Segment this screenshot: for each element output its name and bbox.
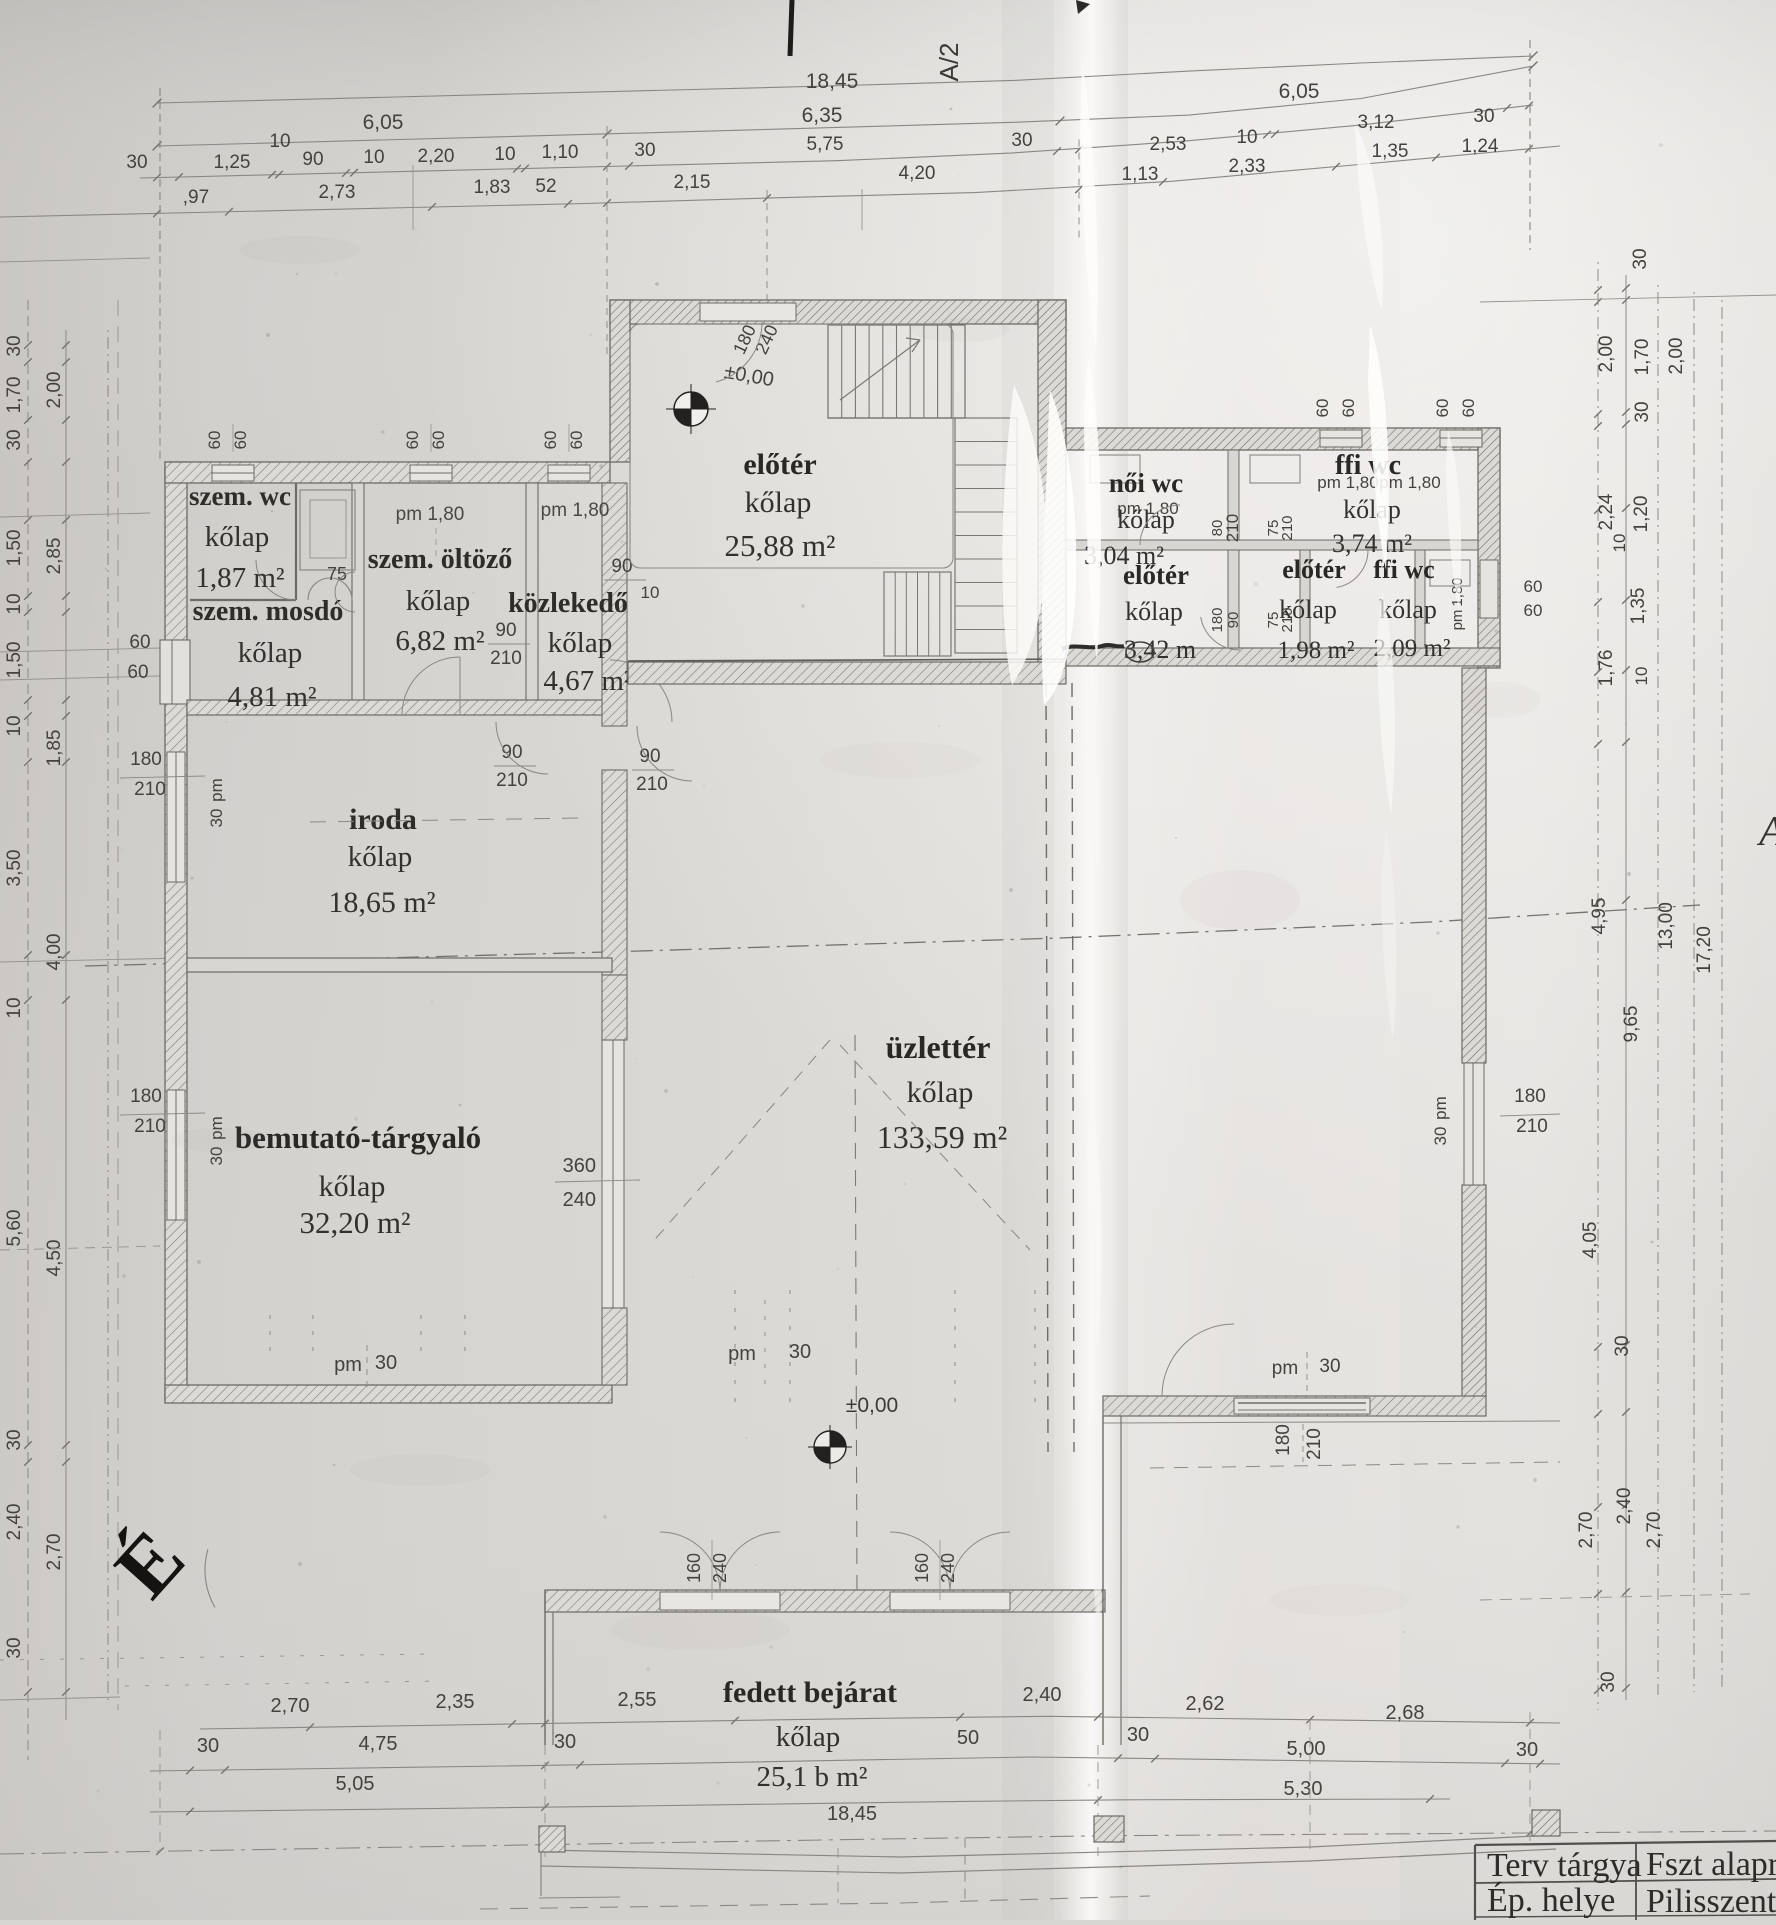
svg-text:180: 180 <box>1209 607 1226 632</box>
svg-text:kőlap: kőlap <box>1117 505 1175 534</box>
svg-text:10: 10 <box>1632 667 1651 686</box>
svg-text:1,98 m²: 1,98 m² <box>1278 637 1355 664</box>
svg-text:pm 1,80: pm 1,80 <box>396 504 465 525</box>
svg-text:kőlap: kőlap <box>907 1076 974 1109</box>
svg-text:±0,00: ±0,00 <box>846 1394 898 1417</box>
svg-text:2,70: 2,70 <box>1576 1512 1597 1549</box>
svg-text:3,74 m²: 3,74 m² <box>1332 529 1412 558</box>
svg-text:52: 52 <box>535 176 556 197</box>
svg-text:1,70: 1,70 <box>4 377 25 414</box>
svg-text:10: 10 <box>269 131 290 152</box>
svg-text:30: 30 <box>1612 1335 1633 1356</box>
svg-text:6,82 m²: 6,82 m² <box>395 625 485 657</box>
svg-text:2,40: 2,40 <box>4 1504 25 1541</box>
svg-text:1,35: 1,35 <box>1372 141 1409 162</box>
svg-text:4,50: 4,50 <box>44 1240 65 1277</box>
svg-text:60: 60 <box>403 431 422 450</box>
svg-text:360: 360 <box>563 1155 596 1177</box>
svg-text:A: A <box>1756 809 1776 855</box>
svg-text:90: 90 <box>302 149 323 170</box>
svg-text:90: 90 <box>1225 612 1242 629</box>
svg-text:30: 30 <box>4 335 25 356</box>
svg-text:kőlap: kőlap <box>776 1721 840 1753</box>
svg-text:2,40: 2,40 <box>1023 1684 1062 1706</box>
svg-text:Fszt alapraj: Fszt alapraj <box>1646 1846 1776 1883</box>
svg-text:210: 210 <box>134 779 166 800</box>
svg-text:női wc: női wc <box>1109 468 1183 498</box>
svg-text:pm 1,80: pm 1,80 <box>541 500 610 521</box>
svg-text:5,05: 5,05 <box>336 1773 375 1795</box>
svg-text:30: 30 <box>789 1341 811 1363</box>
svg-text:pm: pm <box>1449 610 1466 631</box>
svg-text:4,67 m²: 4,67 m² <box>543 665 633 697</box>
svg-text:160: 160 <box>684 1553 704 1583</box>
svg-text:30: 30 <box>634 140 655 161</box>
svg-text:A/2: A/2 <box>934 42 964 81</box>
svg-text:60: 60 <box>567 431 586 450</box>
svg-text:2,20: 2,20 <box>418 146 455 167</box>
svg-text:90: 90 <box>495 620 516 641</box>
svg-text:kőlap: kőlap <box>319 1170 386 1203</box>
svg-text:3,12: 3,12 <box>1358 112 1395 133</box>
svg-text:60: 60 <box>1459 399 1478 418</box>
svg-text:kőlap: kőlap <box>745 486 812 519</box>
svg-text:30: 30 <box>126 152 147 173</box>
svg-text:pm: pm <box>207 778 226 802</box>
svg-text:2,00: 2,00 <box>1666 338 1687 375</box>
svg-text:2,70: 2,70 <box>1644 1512 1665 1549</box>
svg-text:,97: ,97 <box>183 187 209 208</box>
svg-text:pm: pm <box>334 1354 362 1376</box>
svg-text:1,24: 1,24 <box>1462 136 1499 157</box>
svg-text:160: 160 <box>912 1553 932 1583</box>
svg-text:180: 180 <box>1273 1424 1294 1456</box>
svg-text:2,00: 2,00 <box>44 372 65 409</box>
svg-text:4,20: 4,20 <box>899 163 936 184</box>
svg-text:30: 30 <box>1319 1356 1340 1377</box>
svg-text:4,00: 4,00 <box>44 934 65 971</box>
svg-text:1,13: 1,13 <box>1122 164 1159 185</box>
svg-text:kőlap: kőlap <box>205 521 269 553</box>
svg-text:5,30: 5,30 <box>1284 1778 1323 1800</box>
svg-text:210: 210 <box>490 648 522 669</box>
svg-text:30: 30 <box>1127 1724 1149 1746</box>
svg-text:90: 90 <box>639 746 660 767</box>
svg-text:60: 60 <box>231 431 250 450</box>
svg-text:iroda: iroda <box>349 803 417 836</box>
svg-text:4,95: 4,95 <box>1589 898 1610 935</box>
svg-text:30: 30 <box>4 429 25 450</box>
svg-text:kőlap: kőlap <box>1343 495 1401 524</box>
svg-text:szem. wc: szem. wc <box>189 481 291 511</box>
svg-text:30: 30 <box>1632 401 1653 422</box>
svg-text:2,68: 2,68 <box>1386 1702 1425 1724</box>
svg-text:60: 60 <box>1339 399 1358 418</box>
svg-text:3,42 m: 3,42 m <box>1124 635 1196 664</box>
svg-text:60: 60 <box>429 431 448 450</box>
svg-text:75: 75 <box>327 564 347 584</box>
svg-text:kőlap: kőlap <box>238 637 302 669</box>
svg-text:10: 10 <box>1236 127 1257 148</box>
svg-text:2,70: 2,70 <box>44 1534 65 1571</box>
svg-text:fedett bejárat: fedett bejárat <box>723 1676 897 1709</box>
svg-text:18,65 m²: 18,65 m² <box>328 886 435 919</box>
svg-text:szem. mosdó: szem. mosdó <box>193 596 344 627</box>
svg-text:60: 60 <box>1524 577 1543 596</box>
svg-text:1,25: 1,25 <box>214 152 251 173</box>
svg-text:10: 10 <box>641 583 660 602</box>
svg-text:180: 180 <box>1514 1086 1546 1107</box>
svg-text:2,62: 2,62 <box>1186 1693 1225 1715</box>
svg-text:210: 210 <box>496 770 528 791</box>
svg-text:Ép. helye: Ép. helye <box>1487 1882 1615 1919</box>
svg-text:30: 30 <box>554 1731 576 1753</box>
svg-text:210: 210 <box>1279 515 1296 540</box>
svg-text:pm: pm <box>728 1343 756 1365</box>
svg-text:240: 240 <box>563 1189 596 1211</box>
svg-text:30: 30 <box>1516 1739 1538 1761</box>
svg-text:Terv tárgya: Terv tárgya <box>1487 1847 1642 1884</box>
svg-text:6,35: 6,35 <box>802 104 843 127</box>
svg-text:1,76: 1,76 <box>1596 650 1617 687</box>
svg-text:10: 10 <box>1610 534 1629 553</box>
svg-text:1,20: 1,20 <box>1631 496 1652 533</box>
svg-text:1,83: 1,83 <box>474 177 511 198</box>
svg-text:1,35: 1,35 <box>1628 588 1649 625</box>
svg-text:30: 30 <box>1431 1127 1450 1146</box>
svg-text:2,35: 2,35 <box>436 1691 475 1713</box>
svg-text:2,00: 2,00 <box>1596 336 1617 373</box>
svg-text:2,53: 2,53 <box>1150 134 1187 155</box>
svg-text:25,88 m²: 25,88 m² <box>725 528 836 563</box>
svg-text:pm: pm <box>1272 1358 1298 1379</box>
svg-text:32,20 m²: 32,20 m² <box>300 1205 411 1240</box>
svg-text:17,20: 17,20 <box>1694 926 1715 974</box>
svg-text:10: 10 <box>4 593 25 614</box>
svg-text:60: 60 <box>127 662 148 683</box>
svg-text:2,15: 2,15 <box>674 172 711 193</box>
svg-text:5,00: 5,00 <box>1287 1738 1326 1760</box>
svg-text:5,60: 5,60 <box>4 1210 25 1247</box>
svg-text:4,81 m²: 4,81 m² <box>227 681 317 713</box>
svg-text:1,87 m²: 1,87 m² <box>195 562 285 594</box>
svg-text:2,73: 2,73 <box>319 182 356 203</box>
svg-text:30: 30 <box>4 1637 25 1658</box>
svg-text:ffi wc: ffi wc <box>1373 555 1434 584</box>
svg-text:1,70: 1,70 <box>1632 339 1653 376</box>
svg-text:90: 90 <box>611 556 632 577</box>
svg-text:210: 210 <box>1304 1428 1325 1460</box>
svg-text:30: 30 <box>375 1352 397 1374</box>
svg-text:210: 210 <box>134 1116 166 1137</box>
svg-text:10: 10 <box>4 715 25 736</box>
svg-text:50: 50 <box>957 1727 979 1749</box>
svg-text:30: 30 <box>1598 1671 1619 1692</box>
svg-text:240: 240 <box>710 1553 730 1583</box>
svg-text:4,05: 4,05 <box>1580 1222 1601 1259</box>
svg-text:30: 30 <box>197 1735 219 1757</box>
svg-text:5,75: 5,75 <box>807 134 844 155</box>
svg-text:133,59 m²: 133,59 m² <box>877 1119 1007 1155</box>
svg-text:üzlettér: üzlettér <box>886 1029 991 1065</box>
svg-text:180: 180 <box>130 749 162 770</box>
svg-text:előtér: előtér <box>743 448 816 481</box>
svg-text:kőlap: kőlap <box>348 841 412 873</box>
svg-text:210: 210 <box>1516 1116 1548 1137</box>
svg-text:pm: pm <box>1431 1096 1450 1120</box>
svg-text:bemutató-tárgyaló: bemutató-tárgyaló <box>235 1120 481 1155</box>
svg-text:1,10: 1,10 <box>542 142 579 163</box>
svg-text:közlekedő: közlekedő <box>508 588 628 619</box>
svg-text:60: 60 <box>1313 399 1332 418</box>
svg-text:240: 240 <box>938 1553 958 1583</box>
svg-text:2,33: 2,33 <box>1229 156 1266 177</box>
svg-text:1,50: 1,50 <box>4 530 25 567</box>
svg-text:kőlap: kőlap <box>1125 597 1183 626</box>
svg-text:30: 30 <box>1011 130 1032 151</box>
svg-text:10: 10 <box>4 997 25 1018</box>
svg-text:kőlap: kőlap <box>548 627 612 659</box>
svg-text:30: 30 <box>207 809 226 828</box>
svg-text:Pilisszentiv: Pilisszentiv <box>1646 1883 1776 1920</box>
svg-text:60: 60 <box>1433 399 1452 418</box>
svg-text:180: 180 <box>130 1086 162 1107</box>
svg-text:6,05: 6,05 <box>363 111 404 134</box>
svg-text:1,50: 1,50 <box>4 642 25 679</box>
svg-text:2,24: 2,24 <box>1596 493 1617 530</box>
svg-text:13,00: 13,00 <box>1656 902 1677 950</box>
svg-text:3,50: 3,50 <box>4 850 25 887</box>
svg-text:30: 30 <box>1473 106 1494 127</box>
svg-text:szem. öltöző: szem. öltöző <box>368 544 513 575</box>
svg-text:10: 10 <box>494 144 515 165</box>
svg-text:előtér: előtér <box>1123 560 1189 590</box>
svg-text:előtér: előtér <box>1282 555 1346 584</box>
svg-text:4,75: 4,75 <box>359 1733 398 1755</box>
svg-text:2,85: 2,85 <box>44 538 65 575</box>
svg-text:210: 210 <box>636 774 668 795</box>
svg-text:210: 210 <box>1279 607 1296 632</box>
svg-text:10: 10 <box>363 147 384 168</box>
svg-text:60: 60 <box>1524 601 1543 620</box>
svg-text:30: 30 <box>4 1429 25 1450</box>
svg-text:80: 80 <box>1209 520 1226 537</box>
svg-text:2,55: 2,55 <box>618 1689 657 1711</box>
svg-text:9,65: 9,65 <box>1621 1006 1642 1043</box>
svg-text:kőlap: kőlap <box>406 585 470 617</box>
svg-text:pm 1,80: pm 1,80 <box>1317 473 1378 492</box>
svg-text:60: 60 <box>205 431 224 450</box>
svg-text:6,05: 6,05 <box>1279 80 1320 103</box>
svg-text:1,85: 1,85 <box>44 730 65 767</box>
svg-text:60: 60 <box>129 632 150 653</box>
svg-text:2,40: 2,40 <box>1614 1488 1635 1525</box>
svg-text:18,45: 18,45 <box>806 70 859 93</box>
svg-text:30: 30 <box>1630 248 1651 269</box>
svg-text:60: 60 <box>541 431 560 450</box>
svg-text:25,1 b m²: 25,1 b m² <box>756 1761 867 1793</box>
svg-text:2,70: 2,70 <box>271 1695 310 1717</box>
svg-text:18,45: 18,45 <box>827 1803 877 1825</box>
